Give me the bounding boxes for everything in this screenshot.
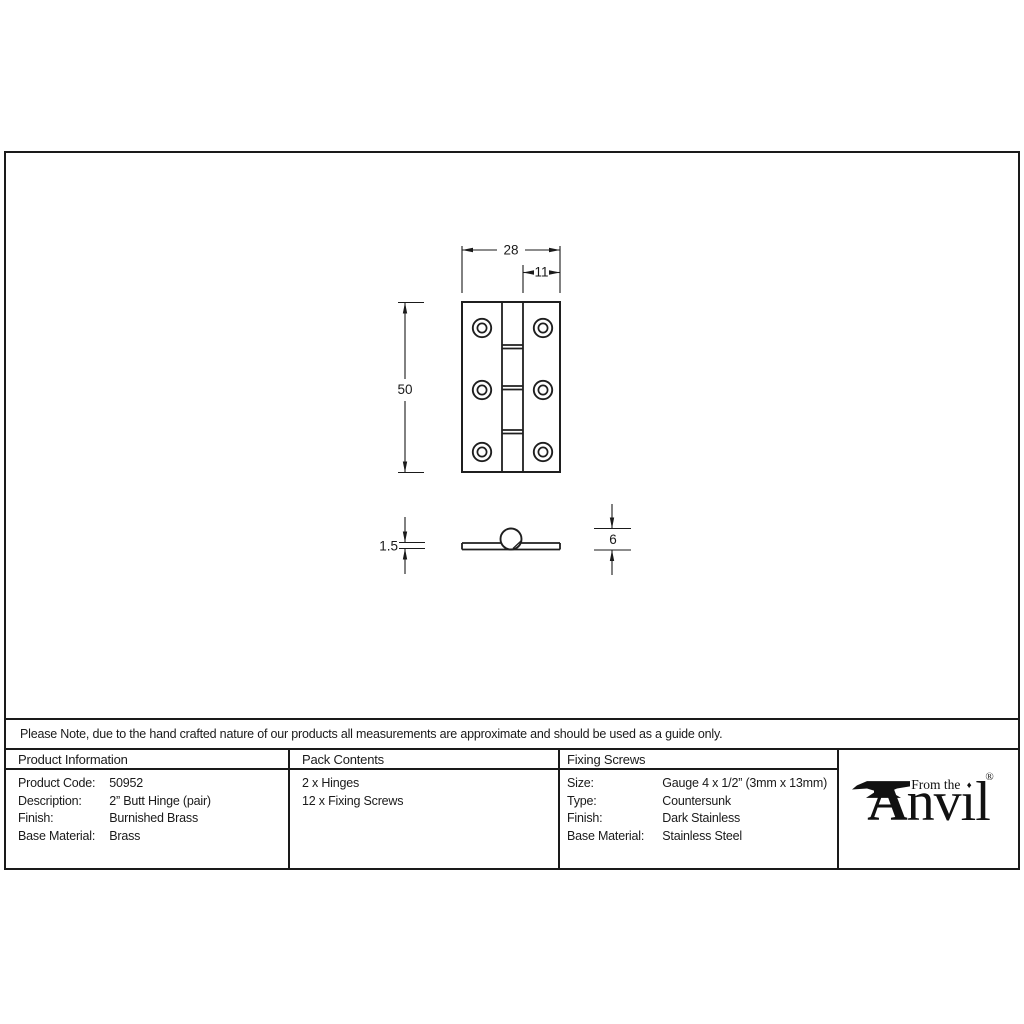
row-value: Dark Stainless <box>662 811 740 825</box>
row-label: Finish: <box>567 810 659 828</box>
pack-contents-header: Pack Contents <box>290 750 558 770</box>
row-label: Description: <box>18 793 106 811</box>
page: { "colors": { "line": "#1a1a1a", "text":… <box>0 0 1024 1024</box>
finish-row: Finish: Burnished Brass <box>18 810 288 828</box>
fixing-screws-body: Size: Gauge 4 x 1/2” (3mm x 13mm) Type: … <box>560 770 837 845</box>
screw-finish-row: Finish: Dark Stainless <box>567 810 837 828</box>
note-text: Please Note, due to the hand crafted nat… <box>20 727 722 741</box>
dim-label-1-5: 1.5 <box>379 539 398 554</box>
row-value: 50952 <box>109 776 143 790</box>
brand-tagline: From the ♦ <box>911 777 971 793</box>
dim-label-11: 11 <box>534 265 548 280</box>
product-code-row: Product Code: 50952 <box>18 775 288 793</box>
brand-logo: Anvıl From the ♦ ® <box>867 774 990 830</box>
brand-logo-cell: Anvıl From the ♦ ® <box>839 750 1018 868</box>
product-information-header: Product Information <box>6 750 288 770</box>
drawing-area: 28 11 50 <box>6 153 1018 718</box>
registered-trademark: ® <box>985 771 993 783</box>
dim-label-6: 6 <box>609 532 617 547</box>
row-value: Countersunk <box>662 794 731 808</box>
note-row: Please Note, due to the hand crafted nat… <box>6 718 1018 748</box>
anvil-icon <box>852 777 912 801</box>
row-label: Type: <box>567 793 659 811</box>
pack-contents-section: Pack Contents 2 x Hinges 12 x Fixing Scr… <box>290 750 560 868</box>
row-label: Product Code: <box>18 775 106 793</box>
hinge-front-view <box>462 302 560 472</box>
size-row: Size: Gauge 4 x 1/2” (3mm x 13mm) <box>567 775 837 793</box>
row-value: Gauge 4 x 1/2” (3mm x 13mm) <box>662 776 827 790</box>
row-label: Finish: <box>18 810 106 828</box>
row-value: Burnished Brass <box>109 811 198 825</box>
fixing-screws-header: Fixing Screws <box>560 750 837 770</box>
screw-base-material-row: Base Material: Stainless Steel <box>567 828 837 846</box>
product-information-body: Product Code: 50952 Description: 2” Butt… <box>6 770 288 845</box>
row-value: 2” Butt Hinge (pair) <box>109 794 211 808</box>
hinge-side-view <box>462 529 560 550</box>
pack-contents-body: 2 x Hinges 12 x Fixing Screws <box>290 770 558 810</box>
row-label: Size: <box>567 775 659 793</box>
pack-item: 2 x Hinges <box>302 775 558 793</box>
content-frame: 28 11 50 <box>4 151 1020 870</box>
product-information-title: Product Information <box>18 752 128 767</box>
diamond-i-dot-icon: ♦ <box>967 781 972 791</box>
fixing-screws-title: Fixing Screws <box>567 752 645 767</box>
dim-label-28: 28 <box>503 243 518 258</box>
row-value: Stainless Steel <box>662 829 742 843</box>
dim-thickness <box>399 517 425 574</box>
type-row: Type: Countersunk <box>567 793 837 811</box>
info-table: Product Information Product Code: 50952 … <box>6 748 1018 868</box>
technical-drawing: 28 11 50 <box>6 153 1018 718</box>
base-material-row: Base Material: Brass <box>18 828 288 846</box>
dim-label-50: 50 <box>397 382 412 397</box>
row-value: Brass <box>109 829 140 843</box>
row-label: Base Material: <box>18 828 106 846</box>
description-row: Description: 2” Butt Hinge (pair) <box>18 793 288 811</box>
pack-contents-title: Pack Contents <box>302 752 384 767</box>
product-information-section: Product Information Product Code: 50952 … <box>6 750 290 868</box>
fixing-screws-section: Fixing Screws Size: Gauge 4 x 1/2” (3mm … <box>560 750 839 868</box>
pack-item: 12 x Fixing Screws <box>302 793 558 811</box>
tagline-text: From the <box>911 777 960 792</box>
row-label: Base Material: <box>567 828 659 846</box>
